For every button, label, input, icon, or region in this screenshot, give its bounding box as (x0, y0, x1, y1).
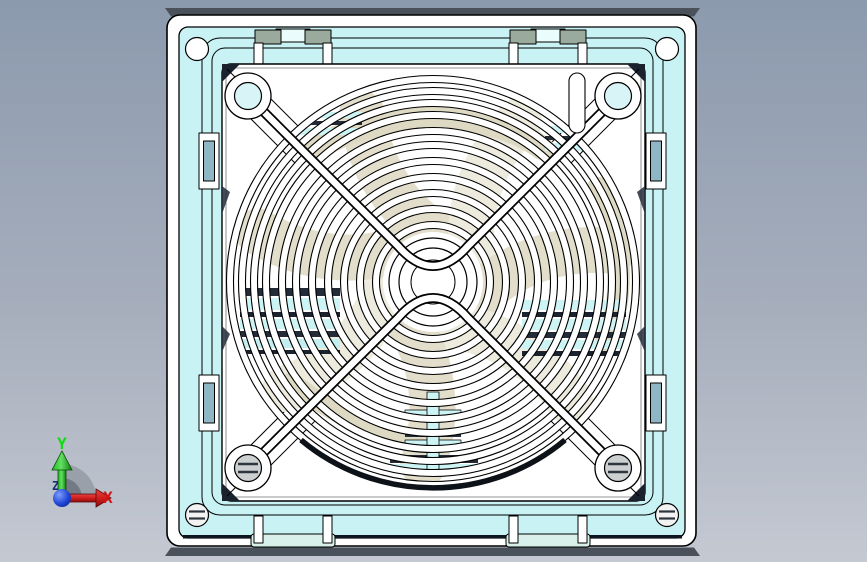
fan-assembly (165, 8, 700, 556)
boss-bottom-left (225, 445, 271, 491)
side-clip-right-lower (646, 375, 666, 431)
frame-bottom-shadow (165, 548, 700, 557)
cad-3d-viewport[interactable]: Z Y X (0, 0, 867, 562)
frame-hole-top-left (186, 38, 209, 61)
panel-slot-detail (569, 73, 585, 133)
boss-top-left (225, 73, 271, 119)
frame-hole-top-right (656, 38, 679, 61)
x-axis-label: X (103, 488, 113, 507)
boss-bottom-right (595, 445, 641, 491)
side-clip-left-upper (199, 133, 219, 189)
side-clip-right-upper (646, 133, 666, 189)
boss-top-right (595, 73, 641, 119)
frame-screw-bottom-left (186, 504, 209, 527)
side-clip-left-lower (199, 375, 219, 431)
origin-ball (53, 489, 71, 507)
frame-screw-bottom-right (656, 504, 679, 527)
y-axis-label: Y (57, 434, 67, 453)
fan-model-render: Z Y X (0, 0, 867, 562)
